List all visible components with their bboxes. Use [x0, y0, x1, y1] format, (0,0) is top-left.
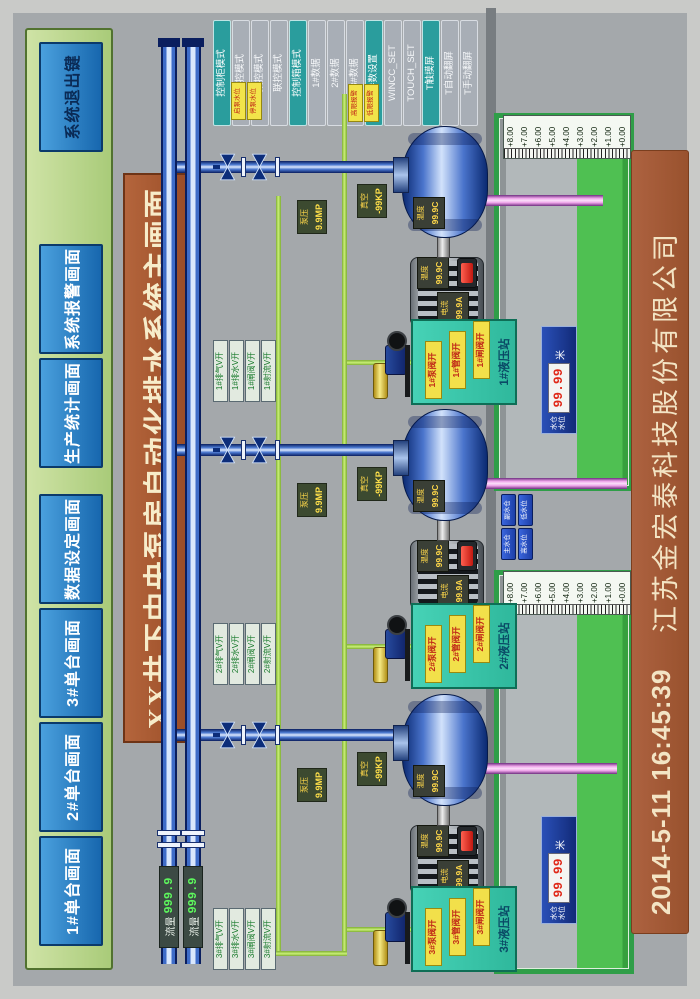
- mode-button-linked[interactable]: 联控模式: [270, 20, 288, 126]
- hydraulic-valve-tag: 1#泵阀开: [425, 341, 442, 399]
- hydraulic-valve-tag: 2#管阀开: [449, 615, 466, 673]
- pump-shaft: [437, 519, 450, 541]
- water-level-value: 99.99: [548, 853, 570, 903]
- aux-pipe-left: [276, 951, 347, 956]
- pressure-gauge-tag: 泵压9.9MP: [297, 200, 327, 234]
- nav-button-data-set[interactable]: 数据设定画面: [39, 494, 103, 604]
- tag-high-alarm: 高限报警: [348, 84, 363, 122]
- hydraulic-station-3: 3#泵阀开 3#管阀开 3#闸阀开 3#液压站: [411, 886, 517, 972]
- pipe-flange: [181, 830, 205, 836]
- panel-label: 水仓: [551, 906, 559, 920]
- mode-button-box[interactable]: 控制箱模式: [289, 20, 307, 126]
- valve-state-label: 3#排水V开: [229, 908, 244, 970]
- hydraulic-valve-tag: 2#泵阀开: [425, 625, 442, 683]
- pipe-flange: [275, 157, 280, 177]
- motor-stop-button[interactable]: [457, 541, 477, 571]
- pipe-flange: [241, 157, 246, 177]
- hydraulic-station-title: 3#液压站: [496, 888, 512, 970]
- aux-pipe-upper: [276, 196, 281, 956]
- button-wincc-set[interactable]: WINCC_SET: [384, 20, 402, 126]
- nav-button-statistics[interactable]: 生产统计画面: [39, 358, 103, 468]
- valve-state-label: 3#排气V开: [213, 908, 228, 970]
- valve-state-label: 1#排水V开: [229, 340, 244, 402]
- page-title: XX井下中央泵房自动化排水系统主画面: [123, 173, 189, 743]
- motor-stop-button[interactable]: [457, 826, 477, 856]
- nav-button-unit1[interactable]: 1#单台画面: [39, 836, 103, 946]
- panel-label: 水位: [559, 906, 567, 920]
- top-nav-bar: 1#单台画面 2#单台画面 3#单台画面 数据设定画面 生产统计画面 系统报警画…: [25, 28, 113, 970]
- valve-state-label: 1#闸阀V开: [245, 340, 260, 402]
- valve-stem: [213, 165, 220, 169]
- valve-state-label: 2#闸阀V开: [245, 623, 260, 685]
- hydraulic-station-1: 1#泵阀开 1#管阀开 1#闸阀开 1#液压站: [411, 319, 517, 405]
- sump-main: +8.00+7.00 +6.00+5.00 +4.00+3.00 +2.00+1…: [494, 113, 634, 491]
- motor-temp-tag: 温度99.9C: [417, 257, 449, 289]
- tag-low-alarm: 低限报警: [364, 84, 379, 122]
- nav-button-unit3[interactable]: 3#单台画面: [39, 608, 103, 718]
- pump-temp-tag: 温度99.9C: [413, 480, 445, 512]
- pump-band: [408, 701, 482, 713]
- scale-ticks: [504, 604, 630, 614]
- scale-labels: +8.00+7.00 +6.00+5.00 +4.00+3.00 +2.00+1…: [504, 116, 630, 148]
- water-level-panel-main: 水仓水位 99.99 米: [541, 326, 577, 434]
- water-level-panel-aux: 水仓水位 99.99 米: [541, 816, 577, 924]
- vacuum-gauge-tag: 真空-99KP: [357, 467, 387, 501]
- valve-state-label: 1#排气V开: [213, 340, 228, 402]
- motor-temp-tag: 温度99.9C: [417, 540, 449, 572]
- pump-3: 温度99.9C: [402, 694, 488, 806]
- scale-labels: +8.00+7.00 +6.00+5.00 +4.00+3.00 +2.00+1…: [504, 572, 630, 604]
- suction-pipe-3: [481, 763, 617, 774]
- main-pipe-1: [161, 46, 177, 964]
- button-auto-page[interactable]: T自动翻屏: [441, 20, 459, 126]
- pump-pulley-icon: [387, 331, 407, 351]
- pump-1: 温度99.9C: [402, 126, 488, 238]
- pipe-flange: [241, 725, 246, 745]
- pump-band: [408, 133, 482, 145]
- pipe-end-cap: [182, 38, 204, 47]
- suction-pipe-1: [481, 195, 603, 206]
- button-sump-main[interactable]: 主水仓: [501, 528, 516, 560]
- hydraulic-valve-tag: 1#管阀开: [449, 331, 466, 389]
- valve-state-label: 2#射流V开: [261, 623, 276, 685]
- nav-button-exit[interactable]: 系统退出键: [39, 42, 103, 152]
- pipe-end-cap: [158, 38, 180, 47]
- pipe-flange: [241, 440, 246, 460]
- pipe-flange: [157, 842, 181, 848]
- check-valve-icon: [251, 436, 268, 464]
- hydraulic-valve-tag: 2#闸阀开: [473, 605, 490, 663]
- pump-pulley-icon: [387, 615, 407, 635]
- main-pipe-2: [185, 46, 201, 964]
- pump-pulley-icon: [387, 898, 407, 918]
- suction-pipe-2: [481, 478, 627, 489]
- valve-state-label: 2#排水V开: [229, 623, 244, 685]
- flow-meter-1: 流量 999.9: [159, 866, 179, 948]
- motor-3: 电流99.9A 温度99.9C: [410, 825, 484, 895]
- nav-button-alarm[interactable]: 系统报警画面: [39, 244, 103, 354]
- unit-label: 米: [552, 840, 567, 850]
- button-sump-aux[interactable]: 副水仓: [501, 494, 516, 526]
- gate-valve-icon: [219, 436, 236, 464]
- pipe-flange: [157, 830, 181, 836]
- hydraulic-station-title: 2#液压站: [496, 605, 512, 687]
- pump-shaft: [437, 804, 450, 826]
- pump-temp-tag: 温度99.9C: [413, 197, 445, 229]
- pipe-flange: [275, 725, 280, 745]
- flow-value: 999.9: [162, 878, 176, 914]
- flow-label: 流量: [186, 917, 201, 937]
- water-level-value: 99.99: [548, 363, 570, 413]
- pipe-flange: [275, 440, 280, 460]
- hydraulic-valve-tag: 3#管阀开: [449, 898, 466, 956]
- pump-neck: [393, 157, 409, 193]
- discharge-riser-1: [165, 161, 411, 173]
- button-low-level[interactable]: 低水位: [518, 494, 533, 526]
- valve-state-label: 3#闸阀V开: [245, 908, 260, 970]
- level-scale-main: +8.00+7.00 +6.00+5.00 +4.00+3.00 +2.00+1…: [503, 115, 631, 159]
- button-touch-set[interactable]: TOUCH_SET: [403, 20, 421, 126]
- valve-state-label: 1#射流V开: [261, 340, 276, 402]
- motor-1: 电流99.9A 温度99.9C: [410, 257, 484, 327]
- mode-button-cabinet[interactable]: 控制柜模式: [213, 20, 231, 126]
- hydraulic-station-2: 2#泵阀开 2#管阀开 2#闸阀开 2#液压站: [411, 603, 517, 689]
- data-button-pump1[interactable]: 1#数据: [308, 20, 326, 126]
- panel-label: 水仓: [551, 416, 559, 430]
- check-valve-icon: [251, 153, 268, 181]
- tag-stop-level: 停泵水位: [247, 82, 262, 120]
- pump-temp-tag: 温度99.9C: [413, 765, 445, 797]
- check-valve-icon: [251, 721, 268, 749]
- motor-stop-button[interactable]: [457, 258, 477, 288]
- hydraulic-pump-base: [405, 345, 410, 397]
- button-manual-page[interactable]: T手动翻屏: [460, 20, 478, 126]
- flow-meter-2: 流量 999.9: [183, 866, 203, 948]
- pump-band: [408, 416, 482, 428]
- aux-pipe-lower: [342, 94, 347, 956]
- hydraulic-valve-tag: 3#闸阀开: [473, 888, 490, 946]
- motor-temp-tag: 温度99.9C: [417, 825, 449, 857]
- pump-shaft: [437, 236, 450, 258]
- pressure-gauge-tag: 泵压9.9MP: [297, 483, 327, 517]
- footer-bar: 2014-5-11 16:45:39 江苏金宏泰科技股份有限公司: [631, 150, 689, 934]
- valve-state-label: 2#排气V开: [213, 623, 228, 685]
- unit-label: 米: [552, 350, 567, 360]
- hmi-main-screen: 1#单台画面 2#单台画面 3#单台画面 数据设定画面 生产统计画面 系统报警画…: [0, 0, 700, 999]
- button-touch-screen[interactable]: T触摸屏: [422, 20, 440, 126]
- button-high-level[interactable]: 高水位: [518, 528, 533, 560]
- discharge-riser-2: [165, 444, 411, 456]
- company-name: 江苏金宏泰科技股份有限公司: [644, 230, 683, 633]
- gate-valve-icon: [219, 153, 236, 181]
- level-scale-aux: +8.00+7.00 +6.00+5.00 +4.00+3.00 +2.00+1…: [503, 571, 631, 615]
- flow-label: 流量: [162, 917, 177, 937]
- hydraulic-valve-tag: 3#泵阀开: [425, 908, 442, 966]
- pump-neck: [393, 725, 409, 761]
- flow-value: 999.9: [186, 878, 200, 914]
- valve-stem: [213, 733, 220, 737]
- discharge-riser-3: [165, 729, 411, 741]
- hydraulic-pump-base: [405, 629, 410, 681]
- valve-stem: [213, 448, 220, 452]
- vacuum-gauge-tag: 真空-99KP: [357, 184, 387, 218]
- pump-neck: [393, 440, 409, 476]
- clock: 2014-5-11 16:45:39: [646, 669, 677, 915]
- hydraulic-pump-base: [405, 912, 410, 964]
- valve-state-label: 3#射流V开: [261, 908, 276, 970]
- hydraulic-station-title: 1#液压站: [496, 321, 512, 403]
- scale-ticks: [504, 148, 630, 158]
- pump-2: 温度99.9C: [402, 409, 488, 521]
- gate-valve-icon: [219, 721, 236, 749]
- motor-2: 电流99.9A 温度99.9C: [410, 540, 484, 610]
- tag-start-level: 启泵水位: [231, 82, 246, 120]
- nav-button-unit2[interactable]: 2#单台画面: [39, 722, 103, 832]
- hydraulic-valve-tag: 1#闸阀开: [473, 321, 490, 379]
- vacuum-gauge-tag: 真空-99KP: [357, 752, 387, 786]
- pipe-flange: [181, 842, 205, 848]
- pressure-gauge-tag: 泵压9.9MP: [297, 768, 327, 802]
- panel-label: 水位: [559, 416, 567, 430]
